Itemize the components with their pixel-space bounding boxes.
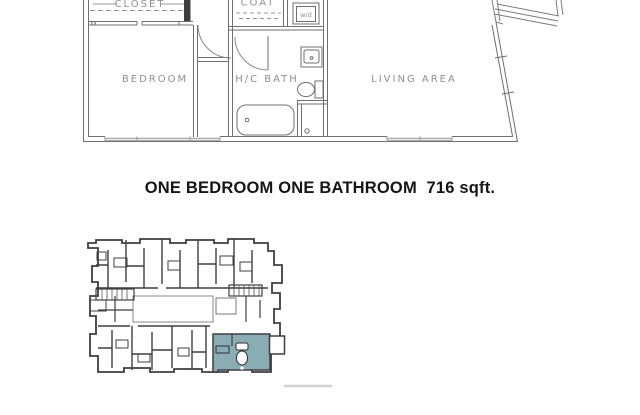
keymap-lower-units xyxy=(98,326,210,370)
label-coat: COAT xyxy=(241,0,276,9)
balcony-railing xyxy=(492,0,563,26)
unit-floorplan: CLOSET COAT w/d BEDROOM H/C BATH LIVING … xyxy=(0,0,640,170)
plan-caption: ONE BEDROOM ONE BATHROOM 716 sqft. xyxy=(0,177,640,199)
bath-door xyxy=(235,36,268,70)
bathtub xyxy=(237,100,328,137)
highlighted-unit xyxy=(213,334,285,372)
bedroom-right-wall xyxy=(194,25,229,137)
pocket-door-panel xyxy=(184,0,191,21)
bath-right-wall xyxy=(324,0,328,137)
bath-left-wall xyxy=(229,0,233,137)
label-bath: H/C BATH xyxy=(235,74,299,85)
label-closet: CLOSET xyxy=(115,0,166,10)
label-bedroom: BEDROOM xyxy=(122,74,188,85)
keymap-stairwell-right xyxy=(229,285,262,296)
label-living: LIVING AREA xyxy=(371,74,457,85)
building-key-map xyxy=(0,225,640,415)
floorplan-page: CLOSET COAT w/d BEDROOM H/C BATH LIVING … xyxy=(0,0,640,415)
entry-door-arc xyxy=(198,25,231,58)
toilet xyxy=(298,81,324,98)
highlighted-unit-balcony xyxy=(270,336,285,354)
window-living xyxy=(387,137,452,142)
keymap-upper-units xyxy=(96,239,268,288)
sink xyxy=(301,47,322,67)
window-bedroom xyxy=(105,137,220,142)
left-exterior-wall xyxy=(84,0,89,142)
label-washer-dryer: w/d xyxy=(300,11,312,19)
slanted-right-wall xyxy=(492,22,518,142)
